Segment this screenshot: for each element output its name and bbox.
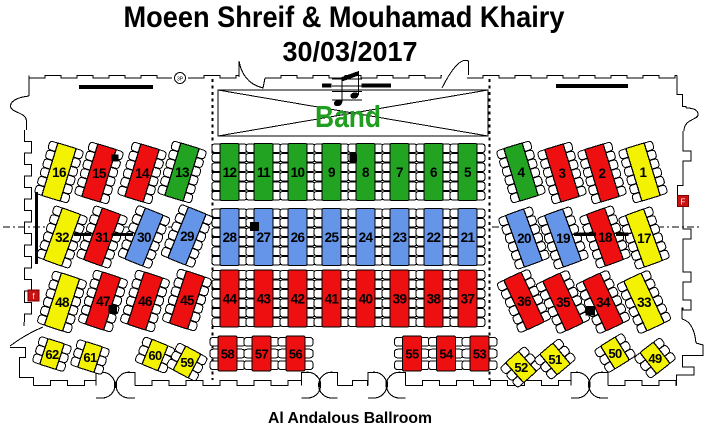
svg-text:7: 7 [396, 165, 403, 180]
svg-text:32: 32 [55, 230, 69, 245]
svg-text:59: 59 [180, 355, 194, 370]
svg-text:20: 20 [517, 231, 531, 246]
svg-text:40: 40 [359, 291, 373, 306]
svg-text:Al Andalous Ballroom: Al Andalous Ballroom [268, 410, 432, 427]
svg-text:62: 62 [45, 347, 59, 362]
svg-text:19: 19 [556, 231, 570, 246]
svg-text:38: 38 [427, 291, 442, 306]
svg-text:27: 27 [257, 230, 271, 245]
svg-text:Band: Band [315, 99, 381, 134]
svg-text:61: 61 [83, 350, 97, 365]
svg-text:55: 55 [405, 346, 419, 361]
svg-text:11: 11 [257, 165, 271, 180]
svg-text:1: 1 [640, 165, 648, 180]
svg-text:50: 50 [608, 346, 622, 361]
svg-text:9: 9 [328, 165, 335, 180]
svg-text:30: 30 [137, 230, 151, 245]
svg-text:24: 24 [359, 230, 374, 245]
svg-text:25: 25 [325, 230, 340, 245]
svg-text:3P: 3P [177, 77, 184, 83]
svg-text:16: 16 [52, 165, 67, 180]
svg-text:13: 13 [175, 165, 190, 180]
svg-text:46: 46 [138, 294, 153, 309]
svg-text:Moeen Shreif & Mouhamad Khairy: Moeen Shreif & Mouhamad Khairy [124, 1, 565, 34]
svg-text:17: 17 [637, 231, 651, 246]
svg-text:44: 44 [223, 291, 238, 306]
svg-text:41: 41 [325, 291, 340, 306]
svg-text:35: 35 [556, 295, 571, 310]
svg-text:12: 12 [223, 165, 237, 180]
svg-text:30/03/2017: 30/03/2017 [283, 36, 418, 67]
svg-text:57: 57 [255, 346, 269, 361]
svg-text:34: 34 [596, 295, 611, 310]
svg-text:33: 33 [637, 295, 652, 310]
svg-text:54: 54 [439, 346, 454, 361]
svg-text:60: 60 [148, 348, 162, 363]
svg-text:F: F [681, 198, 686, 207]
svg-text:53: 53 [473, 346, 487, 361]
svg-text:2: 2 [599, 166, 606, 181]
svg-text:23: 23 [393, 230, 408, 245]
svg-text:45: 45 [180, 293, 195, 308]
svg-text:47: 47 [96, 294, 110, 309]
svg-text:28: 28 [223, 230, 238, 245]
svg-text:3: 3 [559, 166, 567, 181]
svg-text:4: 4 [518, 165, 526, 180]
svg-text:43: 43 [257, 291, 272, 306]
svg-text:56: 56 [289, 346, 303, 361]
svg-text:18: 18 [598, 230, 613, 245]
svg-text:37: 37 [461, 291, 475, 306]
svg-text:26: 26 [291, 230, 306, 245]
svg-text:14: 14 [135, 166, 150, 181]
svg-text:42: 42 [291, 291, 305, 306]
svg-text:36: 36 [517, 294, 532, 309]
svg-text:6: 6 [430, 165, 438, 180]
svg-text:31: 31 [95, 230, 110, 245]
svg-text:8: 8 [362, 165, 370, 180]
svg-text:5: 5 [464, 165, 472, 180]
svg-text:15: 15 [92, 166, 107, 181]
svg-text:58: 58 [221, 346, 235, 361]
svg-text:52: 52 [514, 360, 528, 375]
svg-text:29: 29 [180, 229, 194, 244]
svg-text:10: 10 [291, 165, 305, 180]
svg-text:22: 22 [427, 230, 441, 245]
svg-text:51: 51 [548, 352, 562, 367]
svg-text:39: 39 [393, 291, 407, 306]
svg-text:49: 49 [648, 351, 662, 366]
svg-text:48: 48 [55, 295, 70, 310]
svg-text:21: 21 [461, 230, 476, 245]
